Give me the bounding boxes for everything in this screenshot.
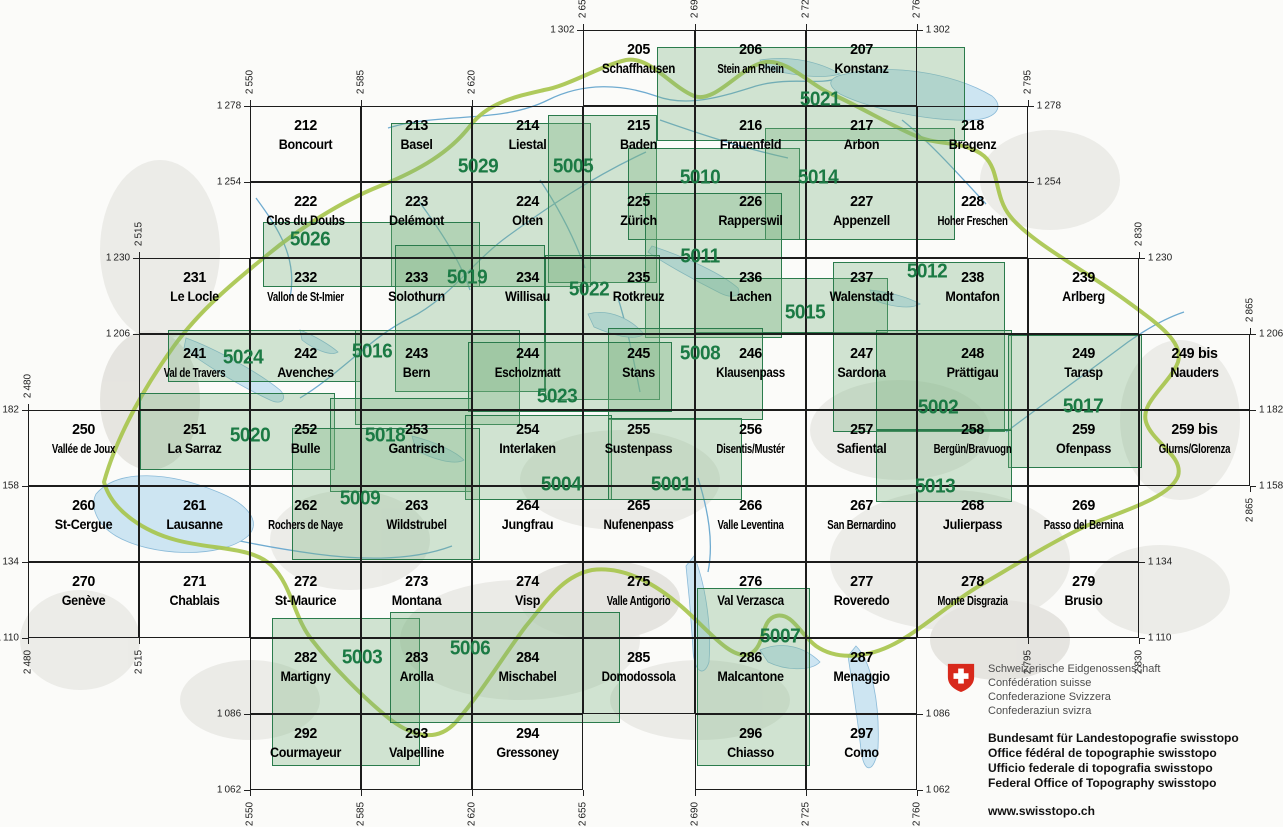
coordinate-tick [917, 30, 923, 31]
coordinate-label: 2 480 [23, 650, 34, 674]
coordinate-tick [1028, 182, 1034, 183]
coordinate-tick [472, 790, 473, 796]
coordinate-tick [583, 24, 584, 30]
coordinate-label: 2 725 [800, 802, 811, 826]
coordinate-tick [1139, 258, 1145, 259]
coordinate-tick [361, 790, 362, 796]
coordinate-label: 2 550 [245, 802, 256, 826]
coordinate-tick [250, 100, 251, 106]
swisstopo-website-link[interactable]: www.swisstopo.ch [988, 804, 1276, 818]
coordinate-label: 1 254 [217, 177, 241, 188]
coordinate-label: 1 302 [550, 25, 574, 36]
coordinate-tick [1250, 410, 1256, 411]
coordinate-tick [22, 562, 28, 563]
coordinate-label: 2 585 [356, 70, 367, 94]
coordinate-label: 2 795 [1022, 70, 1033, 94]
coordinate-label: 1 182 [1259, 405, 1283, 416]
coordinate-label: 1 158 [1259, 481, 1283, 492]
coordinate-tick [917, 714, 923, 715]
coordinate-tick [917, 24, 918, 30]
coordinate-tick [472, 100, 473, 106]
coordinate-tick [244, 106, 250, 107]
coordinate-label: 1 134 [1148, 557, 1172, 568]
coordinate-label: 2 585 [356, 802, 367, 826]
coordinate-label: 1 254 [1037, 177, 1061, 188]
coordinate-tick [28, 638, 29, 644]
coordinate-tick [1139, 638, 1140, 644]
coordinate-tick [22, 486, 28, 487]
coordinate-label: 2 690 [689, 802, 700, 826]
swisstopo-logo-block: Schweizerische Eidgenossenschaft Confédé… [946, 662, 1276, 818]
coordinate-label: 2 760 [911, 802, 922, 826]
coordinate-tick [1250, 334, 1256, 335]
coordinate-label: 2 620 [467, 70, 478, 94]
coordinate-label: 2 830 [1133, 222, 1144, 246]
coordinate-tick [22, 410, 28, 411]
coordinate-tick [1028, 638, 1029, 644]
coordinate-label: 1 158 [0, 481, 19, 492]
coordinate-label: 1 206 [1259, 329, 1283, 340]
coordinate-label: 1 134 [0, 557, 19, 568]
coordinate-tick [244, 714, 250, 715]
coordinate-label: 2 760 [911, 0, 922, 18]
coordinate-tick [139, 252, 140, 258]
office-line: Office fédéral de topographie swisstopo [988, 746, 1276, 761]
coordinate-tick [583, 790, 584, 796]
coordinate-label: 2 725 [800, 0, 811, 18]
coordinate-label: 2 620 [467, 802, 478, 826]
office-line: Federal Office of Topography swisstopo [988, 776, 1276, 791]
office-names: Bundesamt für Landestopografie swisstopo… [988, 731, 1276, 791]
confederation-line: Schweizerische Eidgenossenschaft [988, 662, 1160, 676]
coordinate-label: 1 110 [0, 633, 19, 644]
coordinate-label: 2 865 [1244, 498, 1255, 522]
coordinate-tick [917, 790, 918, 796]
coordinate-label: 1 182 [0, 405, 19, 416]
coordinate-label: 2 690 [689, 0, 700, 18]
coordinate-label: 1 110 [1148, 633, 1172, 644]
coordinate-tick [361, 100, 362, 106]
coordinate-tick [806, 24, 807, 30]
coordinate-tick [1250, 328, 1251, 334]
office-line: Ufficio federale di topografia swisstopo [988, 761, 1276, 776]
coordinate-tick [139, 638, 140, 644]
coordinate-tick [1028, 100, 1029, 106]
swiss-cross-shield-icon [946, 662, 976, 697]
map-sheet-index: 205Schaffhausen206Stein am Rhein207Konst… [0, 0, 1283, 827]
coordinate-tick [695, 24, 696, 30]
coordinate-label: 1 230 [1148, 253, 1172, 264]
coordinate-label: 1 302 [926, 25, 950, 36]
confederation-names: Schweizerische Eidgenossenschaft Confédé… [988, 662, 1160, 718]
coordinate-label: 1 230 [106, 253, 130, 264]
coordinate-tick [250, 790, 251, 796]
coordinate-tick [28, 404, 29, 410]
confederation-line: Confederaziun svizra [988, 704, 1160, 718]
coordinate-tick [133, 258, 139, 259]
coordinate-label: 1 062 [217, 785, 241, 796]
coordinate-label: 1 206 [106, 329, 130, 340]
coordinate-tick [244, 182, 250, 183]
coordinate-label: 2 550 [245, 70, 256, 94]
coordinate-label: 2 515 [134, 650, 145, 674]
coordinate-label: 1 086 [217, 709, 241, 720]
coordinate-tick [133, 334, 139, 335]
coordinate-label: 2 480 [23, 374, 34, 398]
coordinate-label: 2 515 [134, 222, 145, 246]
coordinate-label: 2 655 [578, 802, 589, 826]
coordinate-label: 1 278 [217, 101, 241, 112]
coordinate-label: 2 655 [578, 0, 589, 18]
coordinate-tick [577, 30, 583, 31]
coordinate-tick [1028, 106, 1034, 107]
coordinate-tick [1139, 252, 1140, 258]
coordinate-label: 2 865 [1244, 298, 1255, 322]
coordinate-tick [1139, 562, 1145, 563]
confederation-line: Confédération suisse [988, 676, 1160, 690]
coordinate-label: 1 278 [1037, 101, 1061, 112]
coordinate-tick [695, 790, 696, 796]
confederation-line: Confederazione Svizzera [988, 690, 1160, 704]
office-line: Bundesamt für Landestopografie swisstopo [988, 731, 1276, 746]
coordinate-tick [1250, 486, 1251, 492]
coordinate-tick [806, 790, 807, 796]
